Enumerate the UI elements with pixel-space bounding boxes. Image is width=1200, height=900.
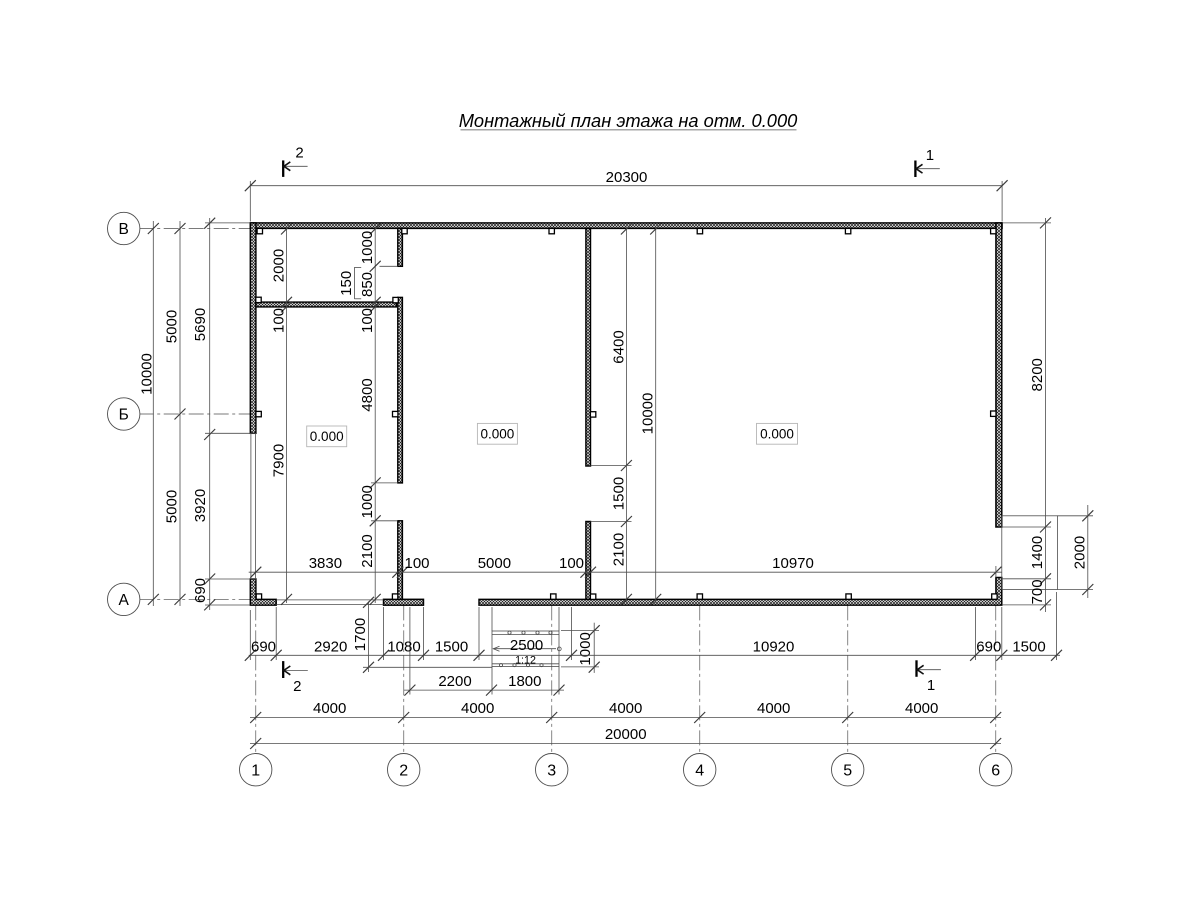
svg-text:6: 6 <box>991 762 1000 779</box>
svg-text:1500: 1500 <box>435 638 468 655</box>
svg-text:850: 850 <box>359 272 376 297</box>
svg-text:1000: 1000 <box>359 485 376 518</box>
svg-text:100: 100 <box>270 308 287 333</box>
svg-text:3920: 3920 <box>192 489 209 522</box>
svg-text:4000: 4000 <box>757 700 790 717</box>
svg-text:5000: 5000 <box>478 555 511 572</box>
svg-text:Б: Б <box>119 407 129 424</box>
svg-text:2500: 2500 <box>510 637 543 654</box>
svg-text:Монтажный план этажа на отм. 0: Монтажный план этажа на отм. 0.000 <box>459 110 798 131</box>
svg-text:20300: 20300 <box>606 169 648 186</box>
svg-text:1000: 1000 <box>359 231 376 264</box>
svg-text:10920: 10920 <box>753 638 795 655</box>
svg-text:100: 100 <box>359 308 376 333</box>
svg-text:1: 1 <box>251 762 260 779</box>
svg-text:4000: 4000 <box>609 700 642 717</box>
svg-text:690: 690 <box>976 638 1001 655</box>
svg-text:4800: 4800 <box>359 378 376 411</box>
svg-text:1800: 1800 <box>508 673 541 690</box>
svg-text:5000: 5000 <box>164 310 181 343</box>
svg-text:В: В <box>119 221 129 238</box>
svg-text:2: 2 <box>295 145 303 162</box>
svg-text:0.000: 0.000 <box>481 427 515 442</box>
svg-text:0.000: 0.000 <box>760 427 794 442</box>
svg-text:150: 150 <box>338 271 355 296</box>
svg-text:690: 690 <box>251 638 276 655</box>
svg-text:1400: 1400 <box>1029 536 1046 569</box>
svg-text:2000: 2000 <box>270 249 287 282</box>
svg-text:3830: 3830 <box>309 555 342 572</box>
svg-text:1: 1 <box>927 677 935 694</box>
svg-text:2: 2 <box>399 762 408 779</box>
svg-text:1080: 1080 <box>387 638 420 655</box>
svg-text:20000: 20000 <box>605 726 647 743</box>
svg-text:1500: 1500 <box>610 477 627 510</box>
svg-text:4000: 4000 <box>461 700 494 717</box>
svg-text:690: 690 <box>192 578 209 603</box>
svg-text:1500: 1500 <box>1012 638 1045 655</box>
svg-text:7900: 7900 <box>270 444 287 477</box>
svg-text:2000: 2000 <box>1071 536 1088 569</box>
svg-text:1700: 1700 <box>352 618 369 651</box>
svg-text:1:12: 1:12 <box>515 654 536 666</box>
svg-text:700: 700 <box>1029 579 1046 604</box>
svg-text:6400: 6400 <box>610 330 627 363</box>
svg-text:4: 4 <box>695 762 704 779</box>
svg-text:2100: 2100 <box>610 533 627 566</box>
svg-text:2: 2 <box>293 678 301 695</box>
svg-text:0.000: 0.000 <box>310 429 344 444</box>
svg-text:4000: 4000 <box>905 700 938 717</box>
svg-text:А: А <box>119 592 130 609</box>
svg-text:100: 100 <box>559 555 584 572</box>
svg-text:2100: 2100 <box>359 534 376 567</box>
svg-text:2920: 2920 <box>314 638 347 655</box>
svg-text:2200: 2200 <box>438 673 471 690</box>
svg-text:4000: 4000 <box>313 700 346 717</box>
svg-text:5: 5 <box>843 762 852 779</box>
svg-text:5000: 5000 <box>164 490 181 523</box>
svg-text:1: 1 <box>926 147 934 164</box>
svg-text:100: 100 <box>404 555 429 572</box>
svg-text:1000: 1000 <box>577 632 594 665</box>
svg-text:10000: 10000 <box>138 353 155 395</box>
svg-text:10000: 10000 <box>640 393 657 435</box>
svg-text:3: 3 <box>547 762 556 779</box>
svg-text:5690: 5690 <box>192 308 209 341</box>
svg-text:10970: 10970 <box>772 555 814 572</box>
svg-text:8200: 8200 <box>1029 358 1046 391</box>
